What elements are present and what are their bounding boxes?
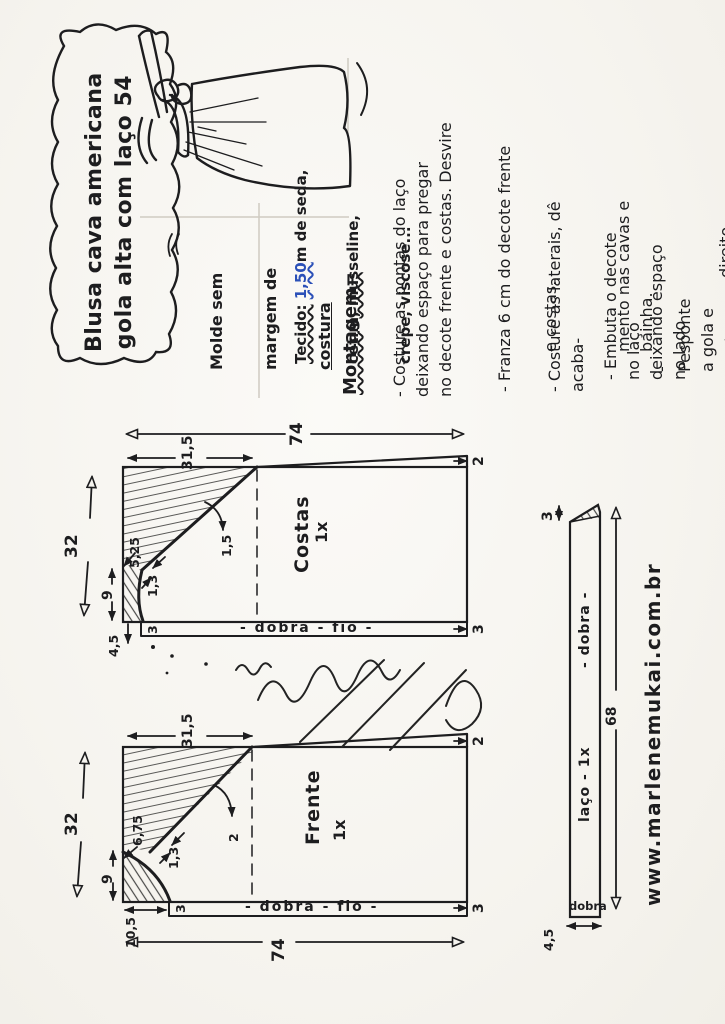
frente-piece-label: Frente <box>302 769 326 845</box>
frente-ease-measure-a: 1,3 <box>166 847 182 869</box>
frente-neck-width-measure: 10,5 <box>123 917 139 948</box>
step-text: direito de <box>716 227 725 278</box>
costas-width-measure: 32 <box>62 534 83 558</box>
ink-dots <box>151 645 208 674</box>
signature-scrawl <box>236 660 481 750</box>
tie-length-measure: 68 <box>604 707 622 726</box>
costas-top-section-measure: 31,5 <box>180 435 198 470</box>
costas-rise-measure: 2 <box>471 456 489 466</box>
frente-top-slant <box>252 734 467 747</box>
frente-hem-measure: 3 <box>471 903 489 913</box>
tie-outline <box>570 505 600 917</box>
assembly-step-5: - Pesponte a gola e pontas. <box>650 297 725 372</box>
pattern-title: Blusa cava americana gola alta com laço … <box>80 72 140 352</box>
frente-neck-depth-measure: 9 <box>100 874 118 884</box>
scanned-sewing-pattern-page: Blusa cava americana gola alta com laço … <box>0 0 725 1024</box>
gather-lines <box>184 98 266 170</box>
costas-hatched-area <box>123 467 257 570</box>
frente-length-measure: 74 <box>269 938 290 962</box>
costas-neck-offset-measure: 4,5 <box>106 635 122 657</box>
tie-fold-end-label: dobra <box>569 899 607 913</box>
costas-ease-measure-b: 1,5 <box>219 535 235 557</box>
costas-top-slant <box>257 456 467 467</box>
bow-tail2 <box>149 120 156 160</box>
frente-quantity: 1x <box>330 820 350 841</box>
fabric-rest: m de seda, <box>292 170 310 263</box>
note-line: Molde sem <box>203 268 230 370</box>
fabric-label: Tecido: <box>292 305 310 365</box>
costas-neck-depth-measure: 9 <box>100 590 118 600</box>
step-line: - Franza 6 cm do decote frente <box>493 146 516 392</box>
assembly-step-1: - Costure as pontas do laço deixando esp… <box>388 122 457 397</box>
fabric-line-1: Tecido: 1,50m de seda, <box>288 170 314 364</box>
bow-tail-tip <box>139 31 151 36</box>
blouse-with-bow-sketch <box>138 31 350 189</box>
frente-rise-measure: 2 <box>471 736 489 746</box>
website-url: www.marlenemukai.com.br <box>641 563 666 906</box>
costas-fold-grain-label: - dobra - fio - <box>240 620 373 636</box>
fabric-amount: 1,50 <box>292 262 310 299</box>
frente-top-section-measure: 31,5 <box>180 713 198 748</box>
costas-ease-measure-a: 1,3 <box>145 575 161 597</box>
tie-fold-mid-label: - dobra - <box>577 592 595 668</box>
costas-hem-measure: 3 <box>471 624 489 634</box>
frente-fold-grain-label: - dobra - fio - <box>245 899 378 915</box>
costas-hem-left-measure: 3 <box>145 625 161 634</box>
frente-hem-left-measure: 3 <box>173 904 189 913</box>
assembly-heading: Montagem= <box>340 272 363 395</box>
collar-band <box>178 152 188 156</box>
frente-width-measure: 32 <box>62 812 83 836</box>
frente-shoulder-measure: 6,75 <box>130 815 146 846</box>
costas-length-measure: 74 <box>287 422 308 446</box>
costas-neck-curve <box>139 570 143 621</box>
frente-ease-measure-b: 2 <box>226 833 242 842</box>
tie-tip-measure: 3 <box>540 511 558 521</box>
costas-quantity: 1x <box>312 522 332 543</box>
tie-piece-label: laço - 1x <box>577 747 595 823</box>
tie-width-measure: 4,5 <box>541 929 557 951</box>
costas-shoulder-measure: 5,25 <box>127 537 143 568</box>
